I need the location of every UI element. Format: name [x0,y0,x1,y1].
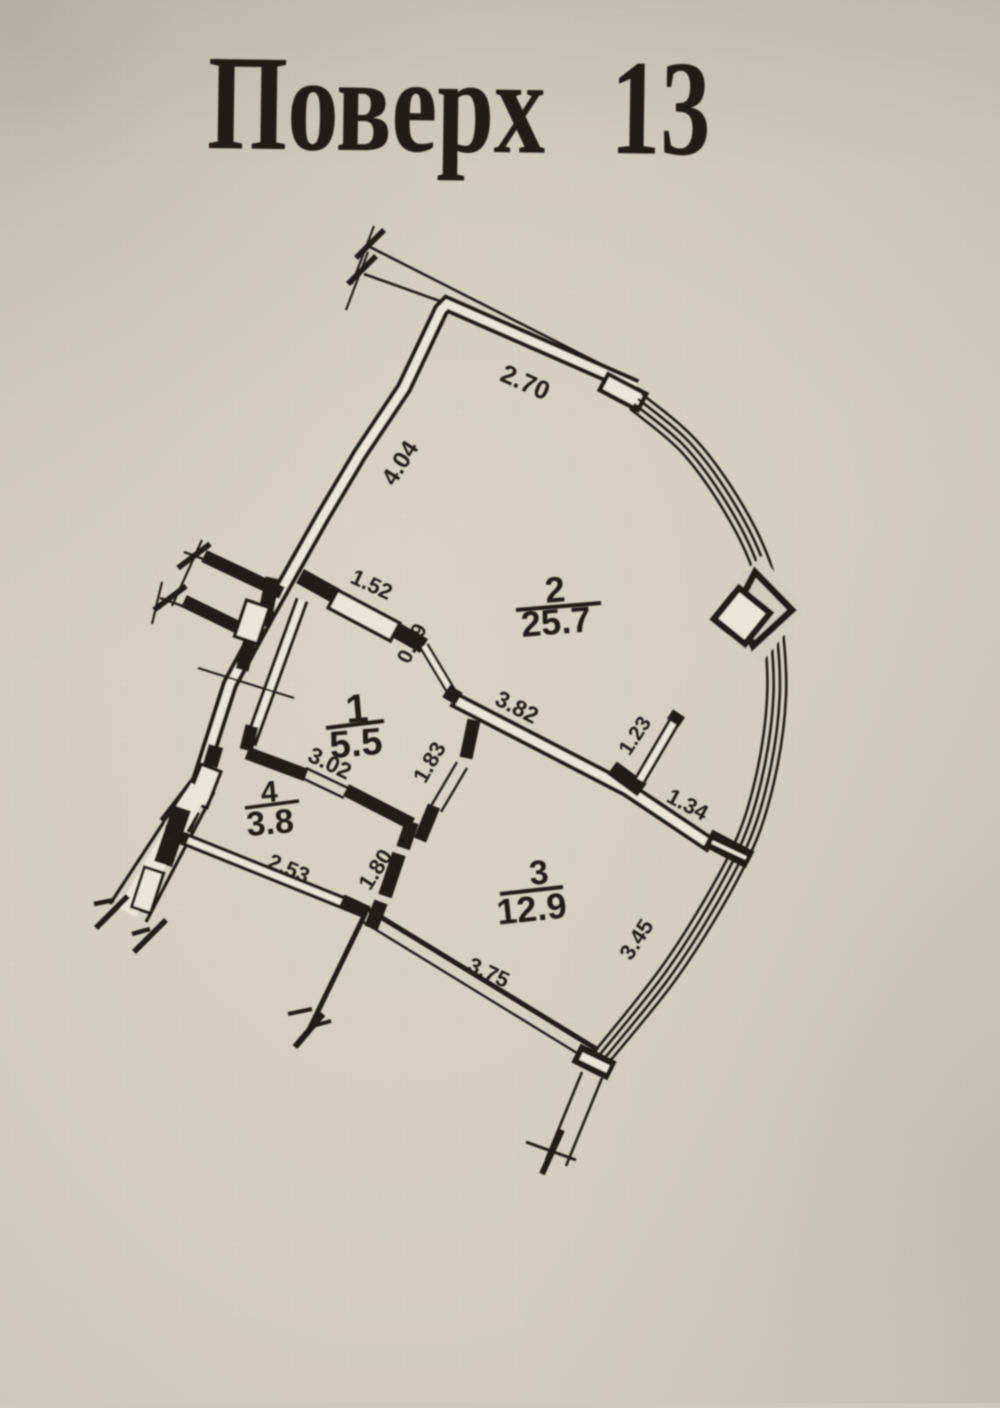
svg-text:3.8: 3.8 [245,802,295,844]
svg-text:Поверх: Поверх [207,28,547,183]
svg-text:13: 13 [610,33,712,184]
svg-text:25.7: 25.7 [519,598,592,645]
svg-text:12.9: 12.9 [495,885,569,933]
